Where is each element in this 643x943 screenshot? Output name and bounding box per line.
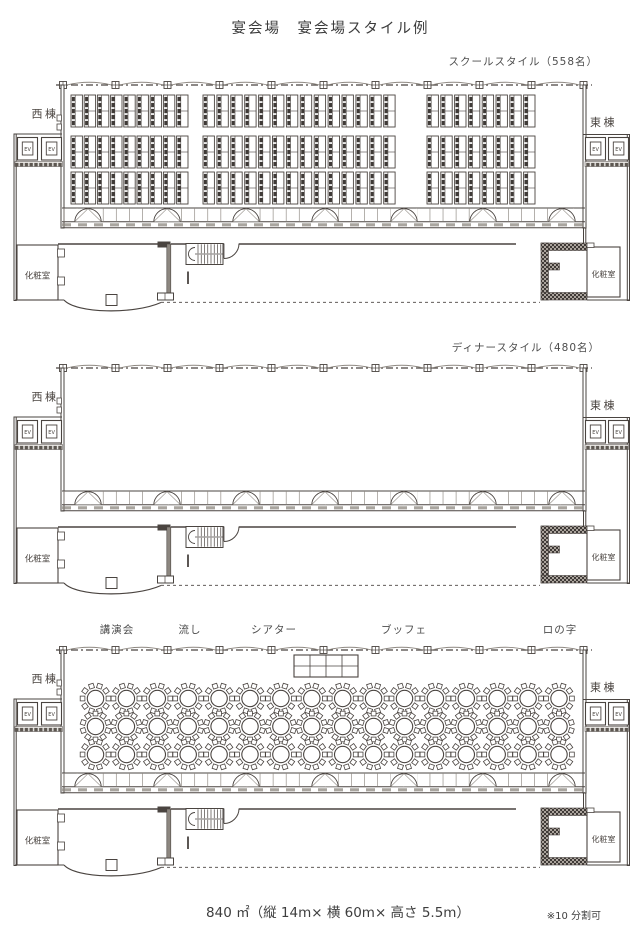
east-restroom: 化粧室 (587, 526, 620, 580)
elevator-label: EV (24, 147, 31, 153)
door-band (62, 208, 585, 228)
west-wing: EVEV西棟化粧室 (14, 107, 65, 301)
round-table (482, 711, 513, 742)
round-table (80, 711, 111, 742)
round-table (142, 711, 173, 742)
door-band (62, 773, 585, 793)
east-wing-label: 東棟 (590, 398, 617, 412)
round-table (482, 739, 513, 770)
round-table (451, 683, 482, 714)
wall-pillar (528, 647, 535, 654)
partition-wall (167, 244, 171, 293)
wall-pillar (164, 647, 171, 654)
partition-wall (167, 527, 171, 576)
round-table (358, 739, 389, 770)
section-label-ro-shape: ロの字 (543, 622, 578, 637)
section-label-buffet: ブッフェ (381, 622, 427, 637)
wall-pillar (528, 82, 535, 89)
east-restroom-label: 化粧室 (592, 269, 616, 279)
round-table (80, 739, 111, 770)
elevator-label: EV (48, 147, 55, 153)
elevator-label: EV (48, 430, 55, 436)
east-restroom: 化粧室 (587, 243, 620, 297)
school-style-furniture (71, 95, 535, 204)
elevator-sill (15, 727, 63, 732)
round-table (420, 739, 451, 770)
elevator-label: EV (592, 430, 599, 436)
round-table (544, 683, 575, 714)
staircase (186, 809, 223, 830)
elevator-box: EV (586, 138, 606, 161)
round-table (544, 739, 575, 770)
round-table (327, 711, 358, 742)
elevator-box: EV (609, 421, 629, 444)
elevator-label: EV (24, 712, 31, 718)
wall-pillar (320, 365, 327, 372)
wall-pillar (268, 647, 275, 654)
round-table (204, 739, 235, 770)
page-title: 宴会場 宴会場スタイル例 (0, 17, 643, 38)
east-restroom: 化粧室 (587, 808, 620, 862)
wall-pillar (320, 647, 327, 654)
west-restroom-label: 化粧室 (25, 271, 51, 282)
elevator-sill (585, 162, 629, 167)
elevator-box: EV (586, 421, 606, 444)
wall-pillar (424, 647, 431, 654)
staircase (186, 527, 223, 548)
west-wing-label: 西棟 (32, 672, 59, 686)
hatched-vestibule-wall (541, 243, 587, 300)
elevator-label: EV (615, 712, 622, 718)
round-table (111, 711, 142, 742)
elevator-label: EV (592, 147, 599, 153)
round-table (235, 683, 266, 714)
banquet-floorplan-page: EVEV西棟化粧室EVEV東棟化粧室EVEV西棟化粧室EVEV東棟化粧室EVEV… (0, 0, 643, 943)
elevator-box: EV (18, 138, 38, 161)
round-table (235, 711, 266, 742)
round-table (111, 739, 142, 770)
door-swing (224, 244, 239, 259)
wall-pillar (112, 82, 119, 89)
wall-pillar (372, 82, 379, 89)
round-table (420, 683, 451, 714)
hatched-vestibule-wall (541, 808, 587, 865)
round-table (111, 683, 142, 714)
round-table (173, 683, 204, 714)
round-table (420, 711, 451, 742)
elevator-sill (585, 727, 629, 732)
west-restroom: 化粧室 (17, 245, 65, 300)
round-table (297, 739, 328, 770)
wall-pillar (372, 365, 379, 372)
elevator-box: EV (609, 138, 629, 161)
west-wing-label: 西棟 (32, 107, 59, 121)
building-shell: EVEV西棟化粧室EVEV東棟化粧室 (14, 365, 630, 594)
wall-pillar (372, 647, 379, 654)
west-wing: EVEV西棟化粧室 (14, 672, 65, 866)
wall-pillar (268, 82, 275, 89)
west-restroom: 化粧室 (17, 528, 65, 583)
hall-dimensions: 840 ㎡（縦 14m× 横 60m× 高さ 5.5m） (206, 901, 470, 921)
wall-pillar (476, 365, 483, 372)
elevator-box: EV (609, 703, 629, 726)
partition-wall (167, 809, 171, 858)
wall-pillar (216, 647, 223, 654)
round-table (235, 739, 266, 770)
elevator-box: EV (42, 421, 62, 444)
round-table (204, 711, 235, 742)
elevator-box: EV (18, 703, 38, 726)
west-restroom-label: 化粧室 (25, 554, 51, 565)
section-label-nagashi: 流し (179, 622, 202, 637)
round-table (389, 683, 420, 714)
plan-label-school: スクールスタイル（558名） (448, 54, 598, 69)
east-restroom-label: 化粧室 (592, 552, 616, 562)
elevator-sill (585, 445, 629, 450)
round-table (327, 683, 358, 714)
wall-pillar (424, 82, 431, 89)
section-label-theater: シアター (251, 622, 297, 637)
round-table (173, 739, 204, 770)
elevator-sill (15, 445, 63, 450)
door-swing (224, 527, 239, 542)
plan-label-dinner: ディナースタイル（480名） (452, 340, 600, 355)
wall-pillar (164, 365, 171, 372)
round-table (204, 683, 235, 714)
west-restroom-label: 化粧室 (25, 836, 51, 847)
round-table (513, 683, 544, 714)
wall-pillar (528, 365, 535, 372)
elevator-label: EV (24, 430, 31, 436)
wall-pillar (164, 82, 171, 89)
wall-pillar (476, 647, 483, 654)
door-band (62, 491, 585, 511)
hatched-vestibule-wall (541, 526, 587, 583)
wall-pillar (112, 647, 119, 654)
round-table (389, 739, 420, 770)
elevator-label: EV (592, 712, 599, 718)
wall-pillar (216, 82, 223, 89)
west-wing: EVEV西棟化粧室 (14, 390, 65, 584)
elevator-box: EV (42, 138, 62, 161)
round-table (266, 683, 297, 714)
wall-pillar (268, 365, 275, 372)
round-table (451, 739, 482, 770)
door-swing (224, 809, 239, 824)
staircase (186, 244, 223, 265)
round-table (266, 711, 297, 742)
wall-pillar (476, 82, 483, 89)
east-wing-label: 東棟 (590, 680, 617, 694)
elevator-label: EV (615, 430, 622, 436)
round-table (297, 711, 328, 742)
corridor (58, 525, 540, 594)
east-wing-label: 東棟 (590, 115, 617, 129)
elevator-box: EV (586, 703, 606, 726)
elevator-label: EV (48, 712, 55, 718)
school-style-plan: EVEV西棟化粧室EVEV東棟化粧室 (14, 82, 630, 311)
east-restroom-label: 化粧室 (592, 834, 616, 844)
round-table (513, 739, 544, 770)
division-note: ※10 分割可 (547, 907, 601, 922)
round-table (358, 711, 389, 742)
round-table (544, 711, 575, 742)
round-table (358, 683, 389, 714)
round-table (297, 683, 328, 714)
round-table (142, 739, 173, 770)
round-table (142, 683, 173, 714)
round-table (173, 711, 204, 742)
elevator-sill (15, 162, 63, 167)
wall-pillar (424, 365, 431, 372)
wall-pillar (320, 82, 327, 89)
corridor (58, 242, 540, 311)
round-table (451, 711, 482, 742)
round-table (389, 711, 420, 742)
west-wing-label: 西棟 (32, 390, 59, 404)
section-label-lecture: 講演会 (100, 622, 135, 637)
wall-pillar (112, 365, 119, 372)
elevator-box: EV (18, 421, 38, 444)
round-table (513, 711, 544, 742)
round-table (266, 739, 297, 770)
floorplans-canvas: EVEV西棟化粧室EVEV東棟化粧室EVEV西棟化粧室EVEV東棟化粧室EVEV… (0, 0, 643, 943)
elevator-label: EV (615, 147, 622, 153)
dinner-style-plan: EVEV西棟化粧室EVEV東棟化粧室 (14, 365, 630, 770)
round-table (80, 683, 111, 714)
wall-pillar (216, 365, 223, 372)
elevator-box: EV (42, 703, 62, 726)
west-restroom: 化粧室 (17, 810, 65, 865)
dinner-style-furniture (80, 655, 574, 770)
round-table (327, 739, 358, 770)
round-table (482, 683, 513, 714)
corridor (58, 807, 540, 876)
